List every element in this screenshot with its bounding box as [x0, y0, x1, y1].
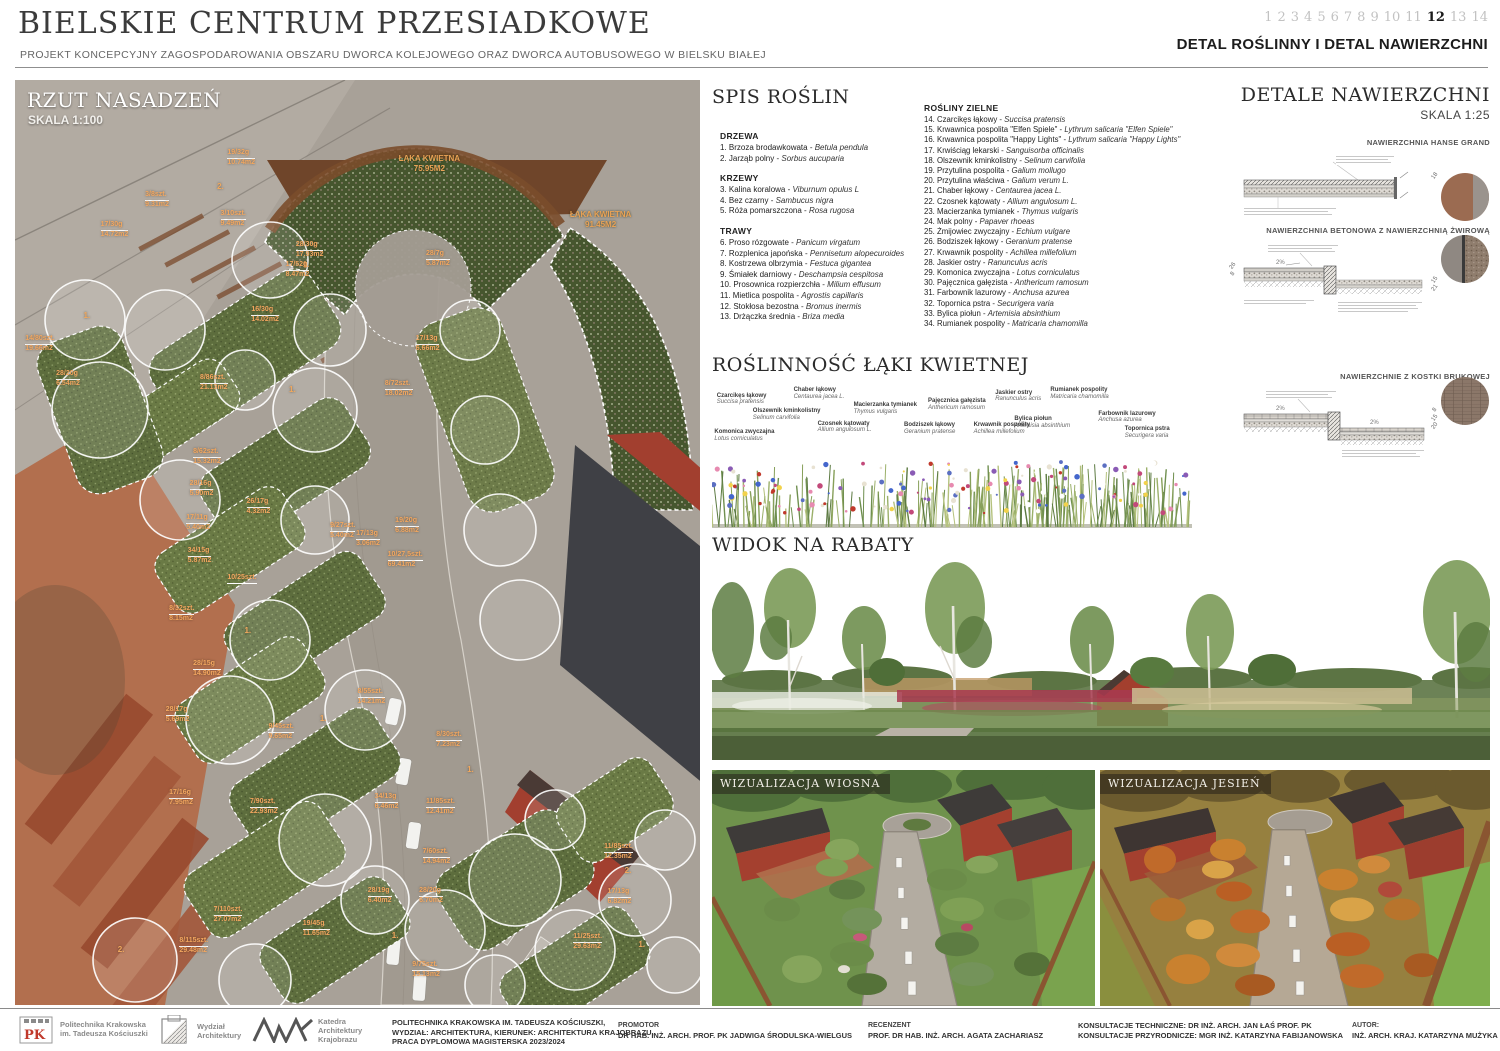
spring-rendering	[712, 770, 1095, 1006]
plan-annotation: 3/8szt.9.31m2	[145, 191, 169, 209]
plant-list-item: 26. Bodziszek łąkowy - Geranium pratense	[924, 237, 1234, 247]
detail1-label: NAWIERZCHNIA HANSE GRAND	[1367, 138, 1490, 147]
plan-annotation: 7/90szt.22.93m2	[250, 798, 278, 816]
plant-list-item: 30. Pajęcznica gałęzista - Anthericum ra…	[924, 278, 1234, 288]
autor-name: INŻ. ARCH. KRAJ. KATARZYNA MUŻYKA	[1352, 1031, 1498, 1041]
plant-list-item: 7. Rozplenica japońska - Pennisetum alop…	[720, 249, 925, 260]
plant-list-item: 8. Kostrzewa olbrzymia - Festuca gigante…	[720, 259, 925, 270]
page-number: 7	[1344, 10, 1352, 25]
meadow-plant-label: Komonica zwyczajnaLotus corniculatus	[714, 429, 774, 442]
meadow-plant-labels: Czarcikęs łąkowySuccisa pratensis Chaber…	[712, 380, 1192, 450]
plan-annotation: 34/15g5.87m2	[188, 547, 212, 565]
plan-annotation: 8/86szt.21.13m2	[200, 374, 228, 392]
page-number-strip: 1234567891011121314	[1259, 10, 1488, 25]
plan-annotation: 28/30g17.93m2	[296, 241, 324, 259]
kak-logo-caption: Katedra Architektury Krajobrazu	[318, 1017, 362, 1044]
meadow-title: ROŚLINNOŚĆ ŁĄKI KWIETNEJ	[712, 354, 1192, 376]
plan-annotation: 3/10szt.9.49m2	[221, 210, 246, 228]
meadow-plant-label: Krwawnik pospolityAchillea millefolium	[974, 422, 1030, 435]
plan-annotation: 8/115szt.29.48m2	[179, 937, 208, 955]
plant-list-item: 10. Prosownica rozpierzchła - Milium eff…	[720, 280, 925, 291]
plant-list-item: 21. Chaber łąkowy - Centaurea jacea L.	[924, 186, 1234, 196]
recenzent-label-block: RECENZENT PROF. DR HAB. INŻ. ARCH. AGATA…	[868, 1021, 1043, 1040]
group-title-zielne: ROŚLINY ZIELNE	[924, 103, 1234, 113]
plant-list-item: 16. Krwawnica pospolita "Happy Lights" -…	[924, 135, 1234, 145]
svg-text:2%: 2%	[1276, 406, 1285, 412]
plan-annotation: 28/20g6.70m2	[419, 887, 443, 905]
plan-annotation: 26/17g4.32m2	[247, 498, 271, 516]
plan-annotation: 7/60szt.14.94m2	[423, 848, 451, 866]
page-number: 2	[1277, 10, 1285, 25]
promotor-block: PROMOTOR DR HAB. INŻ. ARCH. PROF. PK JAD…	[618, 1021, 852, 1040]
plant-list-section: SPIS ROŚLIN DRZEWA 1. Brzoza brodawkowat…	[712, 86, 1234, 348]
plan-annotation: 17/11g5.40m2	[186, 514, 210, 532]
plan-annotation: 11/85szt.12.35m2	[604, 843, 633, 861]
plant-list-col2: ROŚLINY ZIELNE 14. Czarcikęs łąkowy - Su…	[924, 94, 1234, 329]
page-number: 5	[1317, 10, 1325, 25]
plan-annotation: 9/45szt.9.65m2	[268, 723, 293, 741]
plan-annotation: 11/85szt.12.41m2	[426, 798, 455, 816]
plant-list-item: 25. Żmijowiec zwyczajny - Echium vulgare	[924, 227, 1234, 237]
plan-annotation: 19/32g10.74m2	[227, 149, 255, 167]
page-number: 3	[1291, 10, 1299, 25]
rabaty-title: WIDOK NA RABATY	[712, 534, 1490, 556]
konsultacje-przyrodnicze: KONSULTACJE PRZYRODNICZE: MGR INŻ. KATAR…	[1078, 1031, 1343, 1041]
page-number: 1	[1264, 10, 1272, 25]
meadow-plant-label: Bodziszek łąkowyGeranium pratense	[904, 422, 955, 435]
plant-list-item: 24. Mak polny - Papaver rhoeas	[924, 217, 1234, 227]
rabaty-section: WIDOK NA RABATY	[712, 534, 1490, 766]
plant-list-item: 9. Śmiałek darniowy - Deschampsia cespit…	[720, 270, 925, 281]
group-title-trawy: TRAWY	[720, 226, 925, 236]
spring-label: WIZUALIZACJA WIOSNA	[712, 774, 890, 794]
plan-annotation: 17/13g3.06m2	[356, 530, 380, 548]
plan-annotation: 8/32szt.8.15m2	[169, 605, 194, 623]
university-info: POLITECHNIKA KRAKOWSKA IM. TADEUSZA KOŚC…	[392, 1018, 654, 1047]
meadow-plant-label: Farbownik lazurowyAnchusa azurea	[1098, 411, 1155, 424]
plant-list-item: 12. Stokłosa bezostna - Bromus inermis	[720, 302, 925, 313]
plan-annotation: 9/75szt.15.13m2	[412, 961, 440, 979]
detail2-material-swatch	[1440, 234, 1490, 284]
detail2-drawing: 2%	[1238, 240, 1428, 320]
poster-sheet: { "header": { "title": "BIELSKIE CENTRUM…	[0, 0, 1500, 1050]
detail1-drawing	[1238, 150, 1428, 230]
promotor-label: PROMOTOR	[618, 1021, 852, 1031]
plant-list-item: 14. Czarcikęs łąkowy - Succisa pratensis	[924, 115, 1234, 125]
group-title-drzewa: DRZEWA	[720, 131, 925, 141]
plan-annotation: 7/110szt.27.07m2	[214, 906, 243, 924]
plant-list-item: 18. Olszewnik kminkolistny - Selinum car…	[924, 156, 1234, 166]
plant-list-item: 34. Rumianek pospolity - Matricaria cham…	[924, 319, 1234, 329]
plan-annotation: 17/16g7.95m2	[169, 789, 193, 807]
plan-annotation: 14/80szt.19.66m2	[25, 335, 54, 353]
plan-annotations: 19/32g10.74m2 3/8szt.9.31m2 3/10szt.9.49…	[15, 80, 700, 1005]
plant-list-item: 5. Róża pomarszczona - Rosa rugosa	[720, 206, 925, 217]
plan-annotation: 10/25szt.	[227, 574, 256, 584]
meadow-plant-label: Macierzanka tymianekThymus vulgaris	[854, 402, 917, 415]
visualization-spring: WIZUALIZACJA WIOSNA	[712, 770, 1095, 1006]
plan-annotation: 8/30szt.7.23m2	[436, 731, 461, 749]
kak-logo	[252, 1017, 314, 1043]
plan-annotation: 17/13g6.82m2	[608, 888, 632, 906]
plan-annotation: 17/52g8.47m2	[286, 261, 310, 279]
meadow-plant-label: Jaskier ostryRanunculus acris	[995, 390, 1041, 403]
detail1-material-swatch	[1440, 172, 1490, 222]
page-number: 9	[1370, 10, 1378, 25]
header-divider	[15, 67, 1488, 68]
plan-annotation: 28/19g6.40m2	[368, 887, 392, 905]
svg-text:PK: PK	[24, 1028, 46, 1043]
plant-list-item: 29. Komonica zwyczajna - Lotus cornicula…	[924, 268, 1234, 278]
plant-list-item: 17. Krwiściąg lekarski - Sanguisorba off…	[924, 146, 1234, 156]
plant-list-item: 27. Krwawnik pospolity - Achillea millef…	[924, 248, 1234, 258]
plant-list-item: 22. Czosnek kątowaty - Allium angulosum …	[924, 197, 1234, 207]
meadow-illustration	[712, 450, 1192, 530]
paving-details-section: DETALE NAWIERZCHNI SKALA 1:25 NAWIERZCHN…	[1238, 84, 1490, 514]
page-number: 4	[1304, 10, 1312, 25]
plant-list-item: 4. Bez czarny - Sambucus nigra	[720, 196, 925, 207]
plan-annotation: 34/13g6.46m2	[375, 793, 399, 811]
meadow-plant-label: Topornica pstraSecurigera varia	[1125, 426, 1170, 439]
plan-annotation: 28/17g5.69m2	[166, 706, 190, 724]
plant-list-item: 28. Jaskier ostry - Ranunculus acris	[924, 258, 1234, 268]
plan-annotation: 19/20g6.88m2	[395, 517, 419, 535]
plan-annotation: 28/15g14.90m2	[193, 660, 221, 678]
konsultacje-block: KONSULTACJE TECHNICZNE: DR INŻ. ARCH. JA…	[1078, 1021, 1343, 1040]
svg-text:2%: 2%	[1276, 260, 1285, 266]
plan-annotation: 8/72szt.18.02m2	[385, 380, 413, 398]
recenzent-title: RECENZENT	[868, 1021, 1043, 1031]
plan-annotation: 17/13g6.66m2	[416, 335, 440, 353]
plant-list-item: 2. Jarząb polny - Sorbus aucuparia	[720, 154, 925, 165]
page-number: 11	[1405, 10, 1422, 25]
visualization-autumn: WIZUALIZACJA JESIEŃ	[1100, 770, 1490, 1006]
plan-annotation: 28/20g6.54m2	[56, 370, 80, 388]
planting-plan: RZUT NASADZEŃ SKALA 1:100 ŁĄKA KWIETNA75…	[15, 80, 700, 1005]
plan-annotation: 11/25szt.29.63m2	[573, 933, 602, 951]
plan-annotation: 8/55szt.14.21m2	[358, 688, 386, 706]
meadow-plant-label: Czosnek kątowatyAllium angulosum L.	[818, 421, 872, 434]
autor-block: AUTOR: INŻ. ARCH. KRAJ. KATARZYNA MUŻYKA	[1352, 1021, 1498, 1040]
group-title-krzewy: KRZEWY	[720, 173, 925, 183]
plant-list-item: 19. Przytulina pospolita - Galium mollug…	[924, 166, 1234, 176]
plan-annotation: 28/7g5.87m2	[426, 250, 450, 268]
plant-list-item: 6. Proso rózgowate - Panicum virgatum	[720, 238, 925, 249]
details-title: DETALE NAWIERZCHNI	[1241, 84, 1490, 106]
details-scale: SKALA 1:25	[1420, 108, 1490, 122]
plan-annotation: 17/30g14.72m2	[101, 221, 129, 239]
konsultacje-techniczne: KONSULTACJE TECHNICZNE: DR INŻ. ARCH. JA…	[1078, 1021, 1343, 1031]
plant-list-item: 3. Kalina koralowa - Viburnum opulus L	[720, 185, 925, 196]
plan-annotation: 16/30g14.02m2	[251, 306, 279, 324]
autor-label: AUTOR:	[1352, 1021, 1498, 1031]
flower-border	[712, 688, 1490, 736]
meadow-plant-label: Czarcikęs łąkowySuccisa pratensis	[717, 393, 767, 406]
sheet-subtitle: PROJEKT KONCEPCYJNY ZAGOSPODAROWANIA OBS…	[20, 49, 766, 61]
pk-logo-caption: Politechnika Krakowska im. Tadeusza Kośc…	[60, 1020, 148, 1038]
plan-annotation: 19/45g11.65m2	[303, 920, 330, 938]
pk-logo: PK	[18, 1015, 54, 1045]
promotor-name: DR HAB. INŻ. ARCH. PROF. PK JADWIGA ŚROD…	[618, 1031, 852, 1041]
recenzent-name: PROF. DR HAB. INŻ. ARCH. AGATA ZACHARIAS…	[868, 1031, 1043, 1041]
autumn-label: WIZUALIZACJA JESIEŃ	[1100, 774, 1271, 794]
meadow-plant-label: Olszewnik kminkolistnySelinum carvifolia	[753, 408, 821, 421]
plant-list-item: 31. Farbownik lazurowy - Anchusa azurea	[924, 288, 1234, 298]
meadow-plant-label: Pajęcznica gałęzistaAnthericum ramosum	[928, 398, 986, 411]
plant-list-col1: DRZEWA 1. Brzoza brodawkowata - Betula p…	[720, 122, 925, 323]
sheet-main-title: BIELSKIE CENTRUM PRZESIADKOWE	[18, 6, 651, 41]
wa-logo-caption: Wydział Architektury	[197, 1022, 241, 1040]
plant-list-item: 1. Brzoza brodawkowata - Betula pendula	[720, 143, 925, 154]
plant-list-item: 33. Bylica piołun - Artemisia absinthium	[924, 309, 1234, 319]
page-number: 6	[1331, 10, 1339, 25]
meadow-plant-label: Chaber łąkowyCentaurea jacea L.	[794, 387, 845, 400]
plan-annotation: 28/16g5.90m2	[190, 480, 214, 498]
detail2-dimensions-left: 268	[1224, 262, 1242, 278]
detail3-material-swatch	[1440, 376, 1490, 426]
meadow-plant-label: Rumianek pospolityMatricaria chamomilla	[1050, 387, 1108, 400]
page-number: 12	[1427, 10, 1445, 25]
footer: PK Politechnika Krakowska im. Tadeusza K…	[0, 1008, 1500, 1051]
plant-list-item: 15. Krwawnica pospolita "Elfen Spiele" -…	[924, 125, 1234, 135]
detail3-drawing: 2% 2%	[1238, 386, 1428, 466]
page-number: 14	[1471, 10, 1488, 25]
meadow-section: ROŚLINNOŚĆ ŁĄKI KWIETNEJ Czarcikęs łąkow…	[712, 354, 1192, 530]
page-number: 13	[1450, 10, 1467, 25]
plan-annotation: 8/62szt.15.32m2	[193, 448, 221, 466]
plant-list-item: 11. Mietlica pospolita - Agrostis capill…	[720, 291, 925, 302]
wa-logo	[160, 1015, 190, 1045]
plant-list-item: 13. Drżączka średnia - Briza media	[720, 312, 925, 323]
page-number: 10	[1384, 10, 1401, 25]
svg-text:2%: 2%	[1370, 420, 1379, 426]
plan-annotation: 10/27,5szt.69.41m2	[388, 551, 423, 569]
autumn-rendering	[1100, 770, 1490, 1006]
plant-list-item: 32. Topornica pstra - Securigera varia	[924, 299, 1234, 309]
foreground-strip	[712, 736, 1490, 760]
plant-list-item: 20. Przytulina właściwa - Galium verum L…	[924, 176, 1234, 186]
plant-list-item: 23. Macierzanka tymianek - Thymus vulgar…	[924, 207, 1234, 217]
sheet-section-title: DETAL ROŚLINNY I DETAL NAWIERZCHNI	[1177, 36, 1488, 53]
plan-annotation: 9/27szt.5.40m2	[330, 522, 355, 540]
garden-elevation-image	[712, 560, 1490, 760]
page-number: 8	[1357, 10, 1365, 25]
